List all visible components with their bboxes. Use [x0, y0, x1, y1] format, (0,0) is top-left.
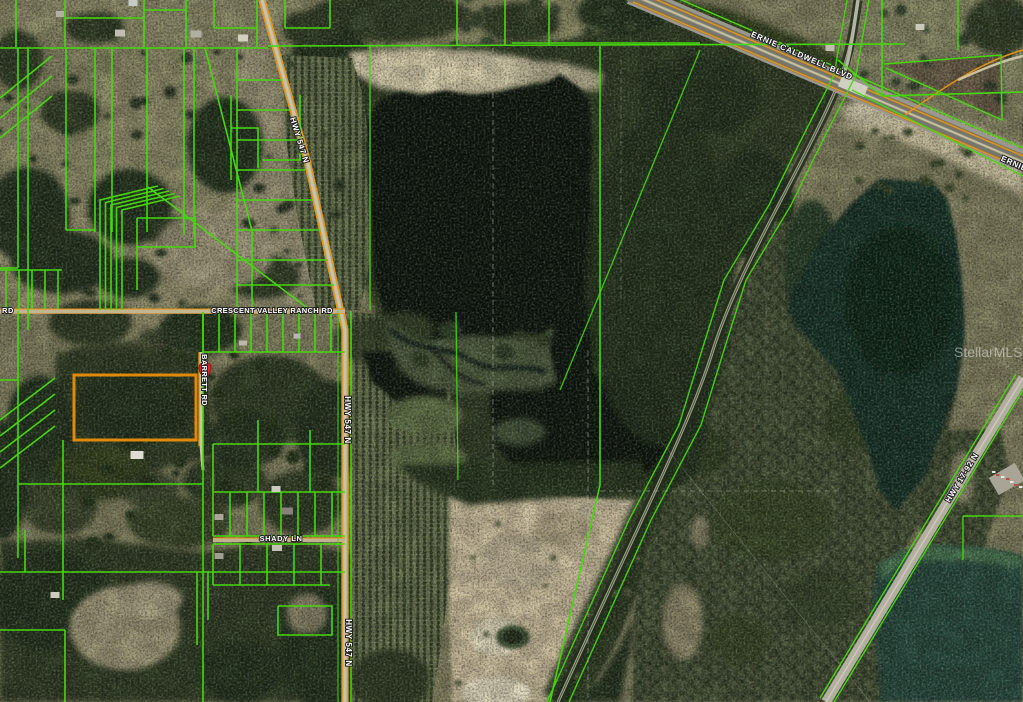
svg-text:StellarMLS: StellarMLS — [954, 344, 1022, 360]
svg-text:CRESCENT VALLEY RANCH RD: CRESCENT VALLEY RANCH RD — [211, 306, 333, 315]
svg-text:RD: RD — [2, 306, 14, 315]
svg-text:HWY 547 N: HWY 547 N — [343, 396, 352, 444]
svg-text:SHADY LN: SHADY LN — [260, 534, 303, 543]
svg-text:HWY 547 N: HWY 547 N — [344, 619, 353, 667]
svg-text:BARRETT RD: BARRETT RD — [200, 354, 209, 406]
